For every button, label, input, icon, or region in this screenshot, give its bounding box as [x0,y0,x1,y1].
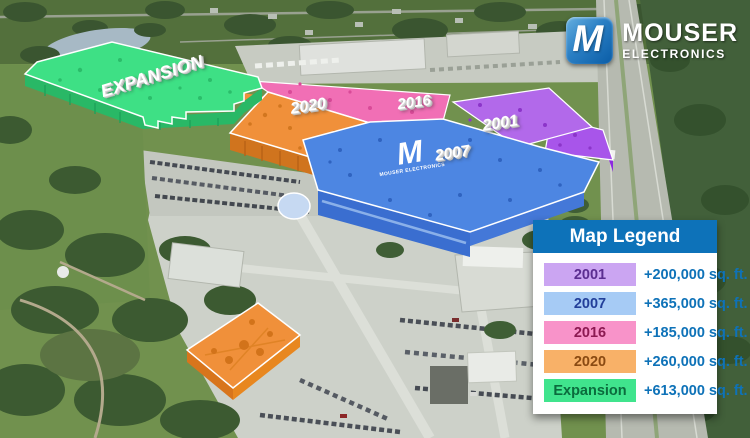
legend-row-expansion: Expansion +613,000 sq. ft. [544,379,706,402]
legend-value-2016: +185,000 sq. ft. [644,325,748,341]
legend-value-2007: +365,000 sq. ft. [644,296,748,312]
warehouse-building [299,39,425,76]
legend-row-2020: 2020 +260,000 sq. ft. [544,350,706,373]
legend-value-expansion: +613,000 sq. ft. [644,383,748,399]
legend-chip-2016: 2016 [544,321,636,344]
mouser-logo: M MOUSER ELECTRONICS [566,17,738,64]
dome-building [57,266,69,278]
mouser-wordmark-sub: ELECTRONICS [622,48,738,60]
legend-row-2007: 2007 +365,000 sq. ft. [544,292,706,315]
legend-row-2001: 2001 +200,000 sq. ft. [544,263,706,286]
legend-chip-2020: 2020 [544,350,636,373]
map-legend-body: 2001 +200,000 sq. ft. 2007 +365,000 sq. … [533,253,717,414]
map-legend-panel: Map Legend 2001 +200,000 sq. ft. 2007 +3… [533,220,717,414]
legend-row-2016: 2016 +185,000 sq. ft. [544,321,706,344]
legend-chip-2007: 2007 [544,292,636,315]
legend-value-2020: +260,000 sq. ft. [644,354,748,370]
legend-chip-2001: 2001 [544,263,636,286]
mouser-wordmark: MOUSER [622,21,738,46]
map-legend-title: Map Legend [533,220,717,253]
legend-value-2001: +200,000 sq. ft. [644,267,748,283]
mouser-logo-m: M [572,20,603,57]
entrance-rotunda [278,193,310,219]
legend-chip-expansion: Expansion [544,379,636,402]
campus-map: M MOUSER ELECTRONICS 2007 2016 2001 2020… [0,0,750,438]
small-white-building [467,351,516,383]
mouser-logo-icon: M [566,17,613,64]
mouser-logo-text: MOUSER ELECTRONICS [622,21,738,60]
